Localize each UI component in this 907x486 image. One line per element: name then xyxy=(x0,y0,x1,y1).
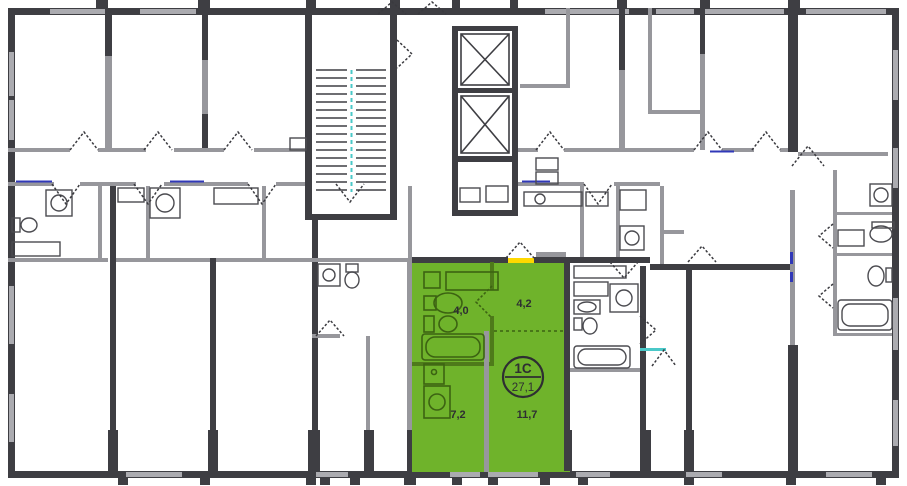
elevator-icon xyxy=(452,26,558,216)
riser-mark xyxy=(640,348,666,351)
toilet-icon xyxy=(574,318,582,330)
sink-icon xyxy=(118,188,144,202)
apartment-type-label: 1С xyxy=(514,361,532,376)
entrance-door-swing-icon xyxy=(506,242,534,258)
washing-machine-icon xyxy=(318,264,340,286)
washing-machine-icon xyxy=(838,230,864,246)
room-area-label-kitchen: 7,2 xyxy=(450,409,465,421)
floor-plan-drawing: 4,0 4,2 7,2 11,7 1С 27,1 xyxy=(0,0,907,486)
entrance-marker xyxy=(508,258,534,263)
cabinet-icon xyxy=(574,266,626,278)
room-area-label-hallway: 4,2 xyxy=(516,298,531,310)
closet-icon xyxy=(214,188,258,204)
staircase-icon xyxy=(305,8,412,220)
floor-plan: 4,0 4,2 7,2 11,7 1С 27,1 xyxy=(0,0,907,486)
stove-icon xyxy=(150,188,180,218)
kitchen-counter-icon xyxy=(524,192,582,206)
kitchen-counter-icon xyxy=(574,282,608,296)
toilet-icon xyxy=(886,268,892,282)
room-area-label-living: 11,7 xyxy=(517,409,538,421)
apartment-type-badge: 1С 27,1 xyxy=(503,357,543,397)
washing-machine-icon xyxy=(620,226,644,250)
kitchen-counter-icon xyxy=(12,242,60,256)
apartment-total-area-label: 27,1 xyxy=(512,382,534,394)
washing-machine-icon xyxy=(46,190,72,216)
interior-walls-lower xyxy=(8,186,798,471)
door-swing-icon xyxy=(397,40,412,68)
stove-icon xyxy=(610,284,638,312)
cabinet-icon xyxy=(620,190,646,210)
selected-apartment-area[interactable] xyxy=(412,262,570,472)
toilet-icon xyxy=(346,264,358,272)
selected-apartment[interactable]: 4,0 4,2 7,2 11,7 1С 27,1 xyxy=(407,242,650,472)
stair-steps xyxy=(316,66,386,194)
corridor-walls xyxy=(8,148,795,345)
room-area-label-bathroom: 4,0 xyxy=(453,305,468,317)
